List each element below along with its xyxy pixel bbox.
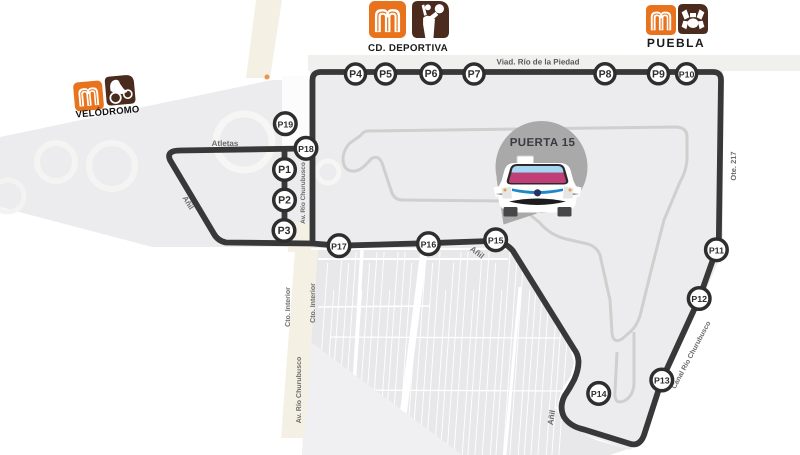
svg-text:P19: P19 (277, 119, 293, 129)
svg-text:P10: P10 (679, 69, 695, 79)
svg-text:P3: P3 (278, 225, 291, 237)
svg-text:Av. Río Churubusco: Av. Río Churubusco (300, 162, 307, 224)
svg-text:P8: P8 (599, 68, 612, 80)
svg-text:CD. DEPORTIVA: CD. DEPORTIVA (368, 43, 448, 54)
svg-text:Atletas: Atletas (212, 139, 239, 148)
svg-text:P11: P11 (709, 245, 724, 255)
svg-text:P6: P6 (425, 68, 438, 80)
svg-text:Ote. 217: Ote. 217 (729, 151, 738, 180)
svg-text:P18: P18 (298, 144, 314, 154)
svg-text:P2: P2 (278, 195, 291, 207)
svg-text:PUERTA 15: PUERTA 15 (510, 137, 576, 149)
svg-text:P7: P7 (468, 69, 481, 81)
svg-text:P15: P15 (488, 235, 504, 245)
svg-text:PUEBLA: PUEBLA (647, 36, 705, 50)
svg-text:Cto. Interior: Cto. Interior (309, 283, 317, 323)
svg-text:P5: P5 (379, 69, 392, 81)
svg-text:Cto. Interior: Cto. Interior (284, 287, 292, 327)
svg-text:P13: P13 (654, 376, 670, 386)
svg-text:P1: P1 (278, 164, 291, 176)
svg-text:P16: P16 (421, 239, 437, 249)
svg-text:P14: P14 (591, 389, 607, 399)
svg-text:P17: P17 (331, 241, 347, 251)
svg-text:P12: P12 (691, 294, 707, 304)
svg-text:Av. Río Churubusco: Av. Río Churubusco (295, 357, 303, 424)
svg-text:P4: P4 (349, 69, 362, 81)
svg-text:P9: P9 (652, 68, 665, 80)
svg-text:Viad. Río de la Piedad: Viad. Río de la Piedad (497, 58, 580, 67)
